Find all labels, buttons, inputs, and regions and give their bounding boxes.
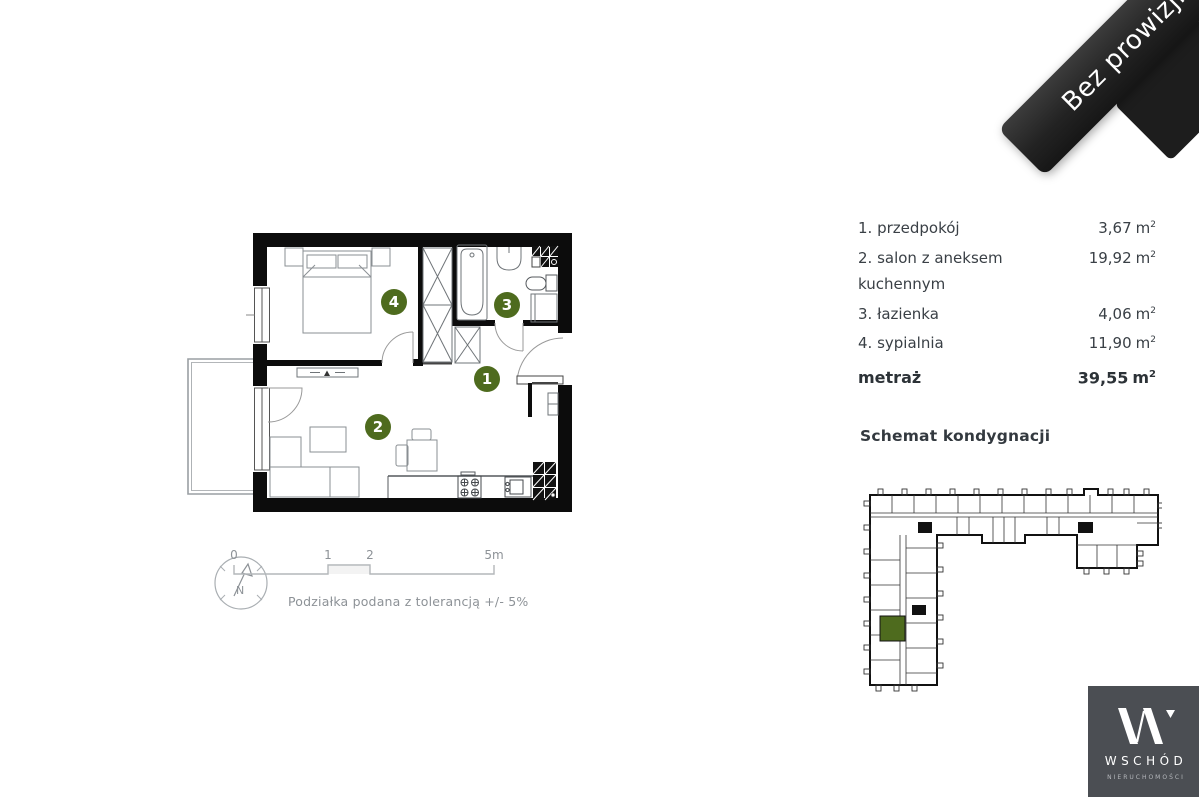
interior-partitions: [870, 495, 1158, 685]
room-area: 11,90m2: [1089, 327, 1156, 357]
bathtub: [457, 245, 487, 320]
bedroom-door: [382, 332, 413, 363]
building-schematic: [862, 483, 1162, 698]
entrance-door: [517, 338, 563, 384]
legend-row: 2. salon z aneksem kuchennym 19,92m2: [858, 242, 1156, 298]
bathroom-cabinet: [531, 294, 557, 322]
svg-text:2: 2: [373, 418, 383, 436]
svg-text:4: 4: [389, 293, 399, 311]
kitchen-sink-icon: [505, 477, 531, 497]
room-area: 3,67m2: [1098, 212, 1156, 242]
scale-bar: 0 1 2 5m: [228, 550, 508, 590]
sideboard: [297, 368, 358, 377]
svg-text:0: 0: [230, 550, 238, 562]
svg-text:3: 3: [502, 296, 512, 314]
room-label: 3. łazienka: [858, 301, 939, 328]
scale-tolerance-note: Podziałka podana z tolerancją +/- 5%: [288, 594, 528, 609]
bathroom-door: [495, 323, 523, 351]
room-label: 4. sypialnia: [858, 330, 944, 357]
stove-icon: [458, 476, 481, 498]
balcony-ticks: [864, 489, 1162, 691]
legend-row: 3. łazienka 4,06m2: [858, 298, 1156, 328]
svg-text:5m: 5m: [484, 550, 503, 562]
coffee-table: [310, 427, 346, 452]
legend-row: 1. przedpokój 3,67m2: [858, 212, 1156, 242]
svg-text:2: 2: [366, 550, 374, 562]
building-outline: [870, 489, 1158, 685]
floorplan-page: Bez prowizji 1. przedpokój 3,67m2 2. sal…: [0, 0, 1199, 797]
room-area: 4,06m2: [1098, 298, 1156, 328]
apartment-floorplan: 1 2 3 4: [180, 228, 580, 528]
room-marker-1: 1: [474, 366, 500, 392]
total-area: 39,55m2: [1078, 361, 1156, 392]
sink-icon: [497, 247, 521, 270]
legend-row: 4. sypialnia 11,90m2: [858, 327, 1156, 357]
balcony: [188, 359, 253, 494]
svg-text:1: 1: [482, 370, 492, 388]
wardrobe: [423, 248, 480, 364]
room-area: 19,92m2: [1089, 242, 1156, 272]
room-marker-3: 3: [494, 292, 520, 318]
washer-icon: [532, 246, 558, 267]
svg-text:1: 1: [324, 550, 332, 562]
room-label: 1. przedpokój: [858, 215, 960, 242]
wschod-logo-mark: [1118, 708, 1175, 744]
room-marker-4: 4: [381, 289, 407, 315]
bedroom-window: [246, 288, 270, 342]
highlighted-unit: [880, 616, 905, 641]
room-legend: 1. przedpokój 3,67m2 2. salon z aneksem …: [858, 212, 1156, 392]
schematic-title: Schemat kondygnacji: [860, 427, 1050, 445]
radiator: [548, 393, 558, 415]
total-label: metraż: [858, 364, 921, 392]
fridge-column: [533, 462, 556, 500]
total-area-row: metraż 39,55m2: [858, 361, 1156, 392]
bed: [285, 248, 390, 333]
dining-table: [396, 429, 437, 471]
balcony-door: [255, 388, 303, 470]
toilet-icon: [526, 275, 557, 291]
room-marker-2: 2: [365, 414, 391, 440]
agency-logo: WSCHÓD NIERUCHOMOŚCI: [1088, 686, 1199, 797]
logo-name: WSCHÓD: [1105, 753, 1188, 768]
outer-walls: [253, 233, 572, 512]
room-label: 2. salon z aneksem kuchennym: [858, 245, 1089, 298]
logo-subtitle: NIERUCHOMOŚCI: [1107, 774, 1185, 781]
